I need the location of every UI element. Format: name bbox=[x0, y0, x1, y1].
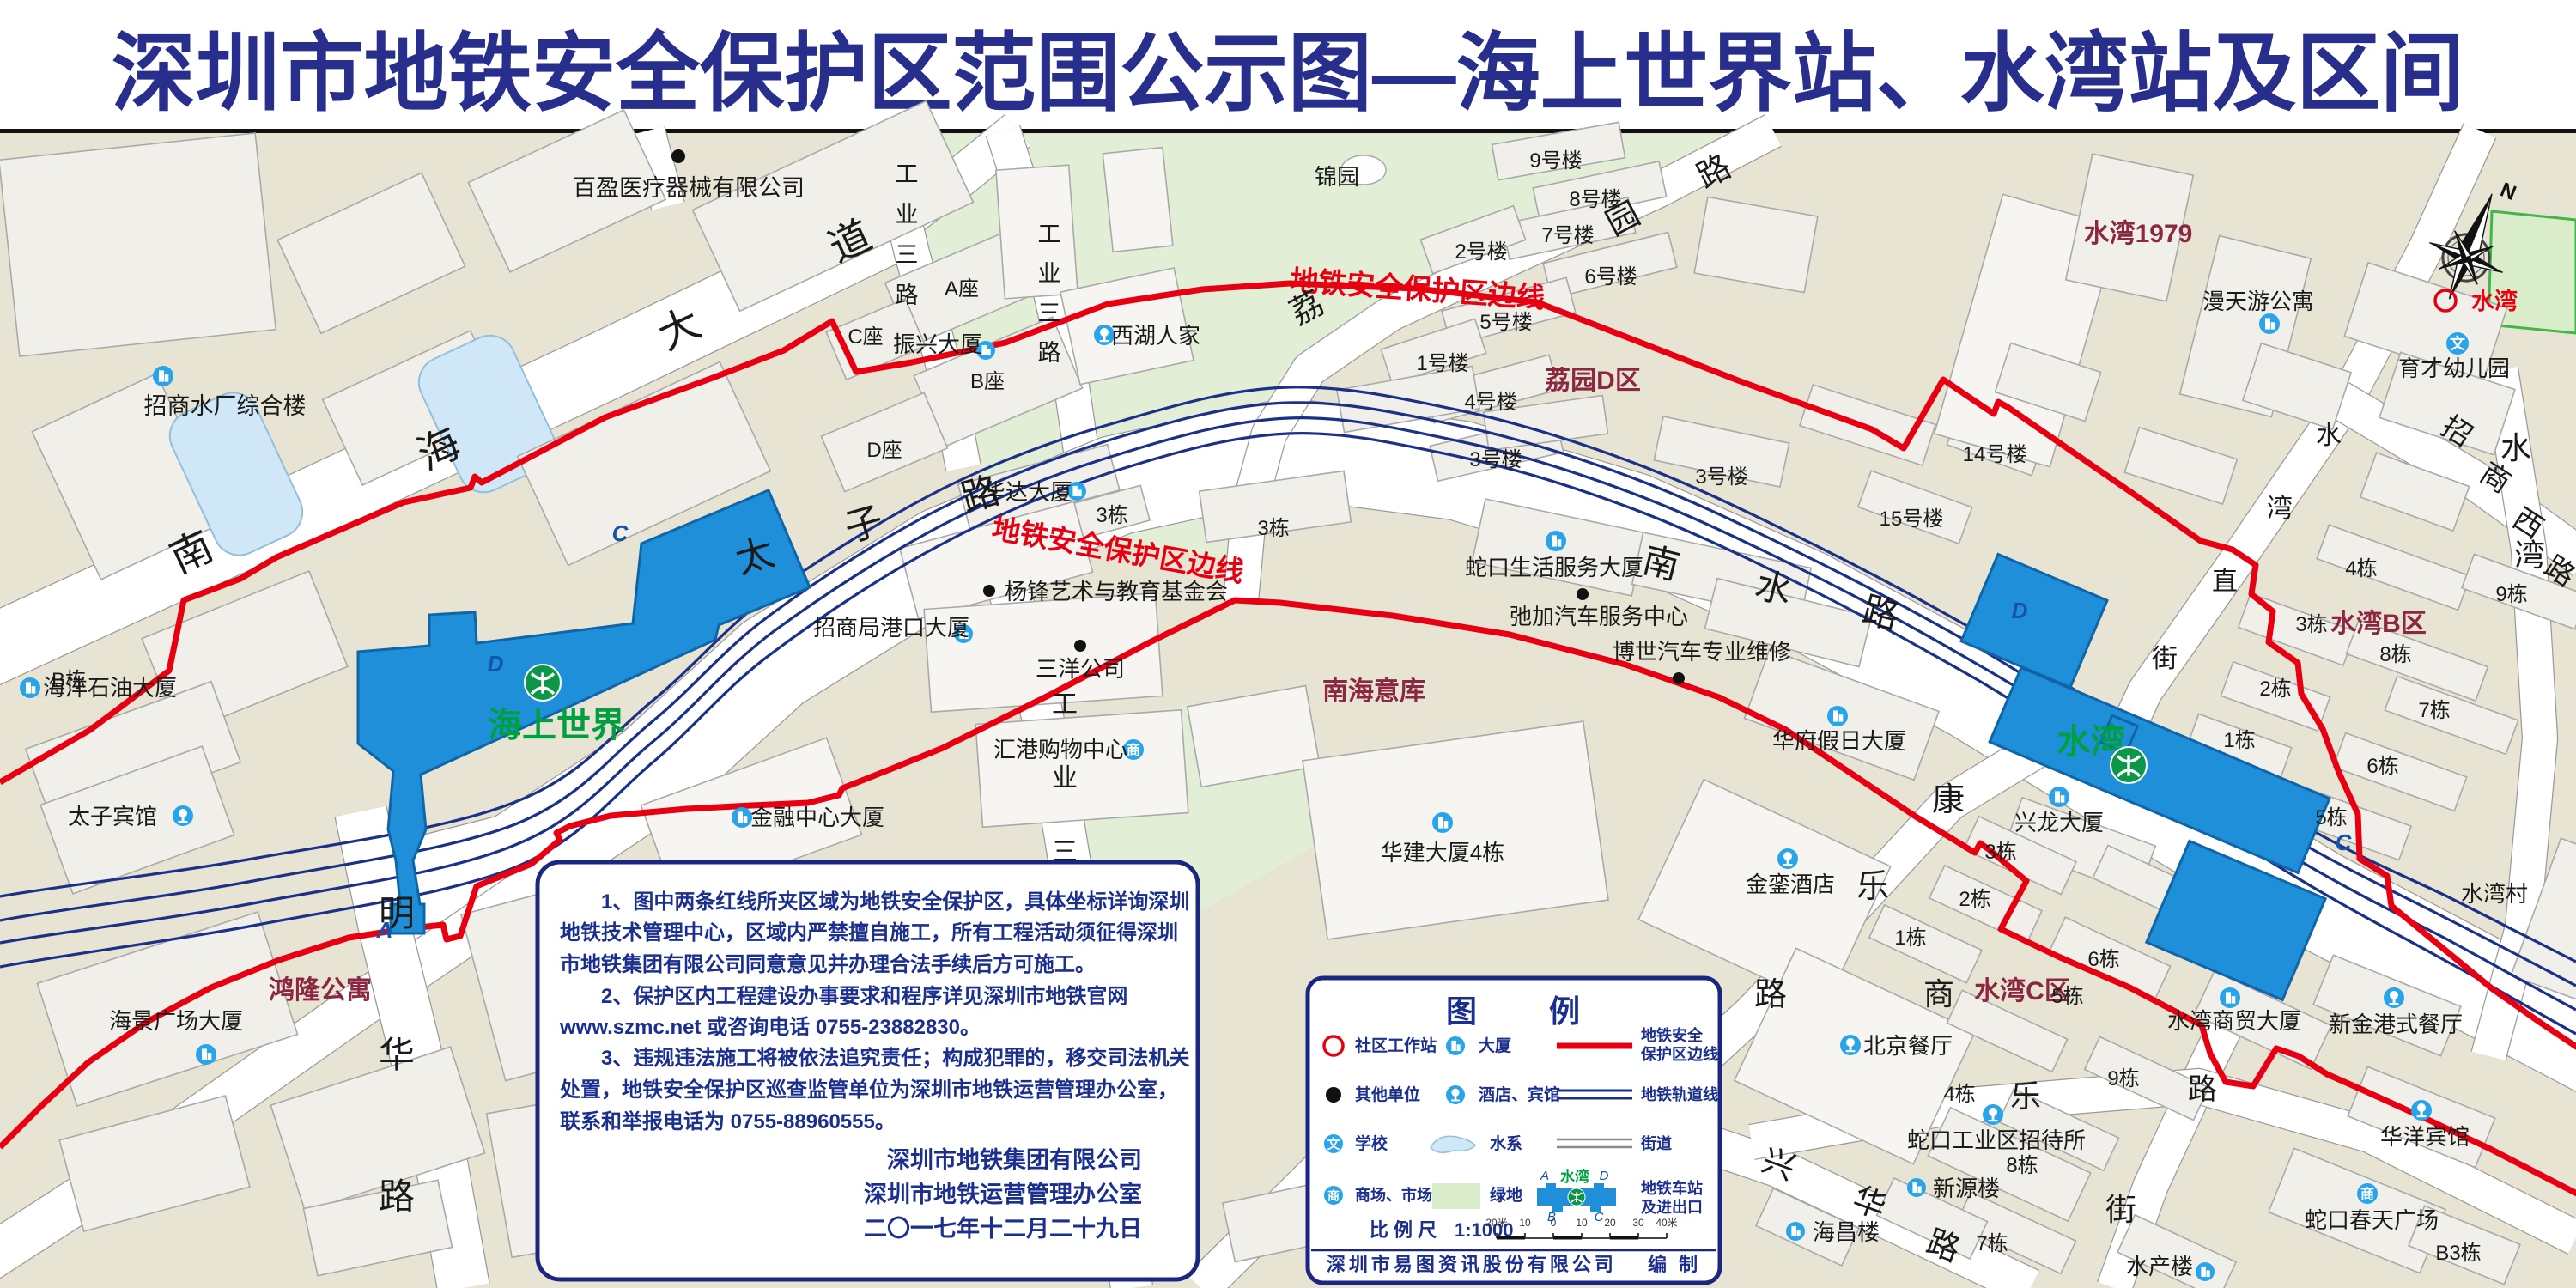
svg-text:及进出口: 及进出口 bbox=[1641, 1198, 1703, 1216]
svg-text:10: 10 bbox=[1519, 1217, 1531, 1229]
svg-text:3栋: 3栋 bbox=[2295, 613, 2327, 636]
svg-text:百盈医疗器械有限公司: 百盈医疗器械有限公司 bbox=[573, 175, 805, 201]
svg-text:海景广场大厦: 海景广场大厦 bbox=[109, 1008, 243, 1034]
svg-text:街: 街 bbox=[2152, 645, 2178, 673]
svg-text:A: A bbox=[1540, 1169, 1549, 1183]
svg-text:水湾1979: 水湾1979 bbox=[2084, 219, 2193, 248]
svg-text:D: D bbox=[1600, 1169, 1609, 1183]
svg-text:商: 商 bbox=[2360, 1186, 2374, 1202]
svg-text:其他单位: 其他单位 bbox=[1355, 1084, 1420, 1104]
svg-text:7栋: 7栋 bbox=[2418, 699, 2450, 722]
svg-text:8栋: 8栋 bbox=[2379, 643, 2411, 666]
svg-text:比 例 尺: 比 例 尺 bbox=[1370, 1219, 1437, 1241]
svg-text:业: 业 bbox=[1038, 261, 1061, 287]
svg-text:水湾商贸大厦: 水湾商贸大厦 bbox=[2167, 1008, 2301, 1034]
svg-text:1栋: 1栋 bbox=[1894, 927, 1926, 950]
svg-text:新源楼: 新源楼 bbox=[1933, 1176, 2000, 1201]
svg-text:华洋宾馆: 华洋宾馆 bbox=[2380, 1124, 2470, 1150]
svg-text:7号楼: 7号楼 bbox=[1541, 224, 1594, 247]
svg-text:1栋: 1栋 bbox=[2223, 729, 2255, 752]
svg-text:2、保护区内工程建设办事要求和程序详见深圳市地铁官网: 2、保护区内工程建设办事要求和程序详见深圳市地铁官网 bbox=[560, 984, 1127, 1008]
svg-text:路: 路 bbox=[896, 283, 919, 308]
svg-text:A座: A座 bbox=[945, 277, 979, 301]
svg-text:乐: 乐 bbox=[1856, 869, 1889, 905]
svg-text:3、违规违法施工将被依法追究责任；构成犯罪的，移交司法机关: 3、违规违法施工将被依法追究责任；构成犯罪的，移交司法机关 bbox=[560, 1046, 1189, 1070]
svg-text:3栋: 3栋 bbox=[1984, 841, 2016, 864]
svg-text:文: 文 bbox=[2450, 335, 2466, 353]
svg-text:2栋: 2栋 bbox=[1959, 888, 1990, 911]
svg-text:酒店、宾馆: 酒店、宾馆 bbox=[1479, 1084, 1560, 1104]
svg-text:康: 康 bbox=[1932, 782, 1965, 818]
svg-text:9栋: 9栋 bbox=[2107, 1067, 2139, 1091]
svg-text:D: D bbox=[2012, 598, 2028, 623]
svg-text:社区工作站: 社区工作站 bbox=[1354, 1036, 1437, 1055]
svg-text:保护区边线: 保护区边线 bbox=[1640, 1045, 1718, 1063]
svg-text:乐: 乐 bbox=[2010, 1078, 2041, 1114]
svg-text:3号楼: 3号楼 bbox=[1695, 465, 1747, 489]
svg-text:商: 商 bbox=[1127, 742, 1140, 758]
svg-text:兴龙大厦: 兴龙大厦 bbox=[2014, 810, 2104, 835]
svg-text:D座: D座 bbox=[866, 439, 902, 462]
svg-text:4栋: 4栋 bbox=[2345, 557, 2377, 580]
svg-text:鸿隆公寓: 鸿隆公寓 bbox=[269, 975, 372, 1005]
svg-text:例: 例 bbox=[1549, 993, 1580, 1029]
svg-text:深圳市地铁运营管理办公室: 深圳市地铁运营管理办公室 bbox=[864, 1181, 1142, 1207]
svg-text:金融中心大厦: 金融中心大厦 bbox=[750, 805, 884, 830]
svg-text:业: 业 bbox=[896, 202, 919, 228]
svg-text:20: 20 bbox=[1604, 1217, 1616, 1229]
svg-text:招商水厂综合楼: 招商水厂综合楼 bbox=[144, 393, 307, 419]
svg-text:育才幼儿园: 育才幼儿园 bbox=[2398, 355, 2510, 381]
svg-text:华达大厦: 华达大厦 bbox=[983, 479, 1072, 505]
svg-text:2号楼: 2号楼 bbox=[1455, 240, 1507, 264]
svg-text:水系: 水系 bbox=[1490, 1134, 1522, 1153]
svg-text:14号楼: 14号楼 bbox=[1963, 443, 2027, 466]
svg-text:街道: 街道 bbox=[1640, 1134, 1672, 1152]
svg-text:南海意库: 南海意库 bbox=[1322, 677, 1425, 706]
svg-text:6栋: 6栋 bbox=[2366, 755, 2398, 778]
svg-text:文: 文 bbox=[1327, 1137, 1340, 1152]
svg-text:5栋: 5栋 bbox=[2051, 985, 2083, 1008]
svg-text:弛加汽车服务中心: 弛加汽车服务中心 bbox=[1510, 604, 1688, 629]
svg-text:20米: 20米 bbox=[1485, 1217, 1507, 1229]
svg-text:华府假日大厦: 华府假日大厦 bbox=[1772, 728, 1906, 754]
svg-text:2栋: 2栋 bbox=[2259, 677, 2291, 701]
svg-text:水湾: 水湾 bbox=[2471, 288, 2518, 314]
svg-text:8栋: 8栋 bbox=[2006, 1154, 2038, 1177]
svg-text:太子宾馆: 太子宾馆 bbox=[68, 804, 157, 829]
svg-text:业: 业 bbox=[1052, 764, 1078, 793]
svg-text:蛇口生活服务大厦: 蛇口生活服务大厦 bbox=[1465, 555, 1643, 580]
svg-text:5号楼: 5号楼 bbox=[1479, 311, 1532, 334]
svg-text:3栋: 3栋 bbox=[1257, 517, 1289, 540]
svg-text:6号楼: 6号楼 bbox=[1584, 265, 1637, 289]
svg-text:B3栋: B3栋 bbox=[2435, 1242, 2481, 1265]
svg-text:招商局港口大厦: 招商局港口大厦 bbox=[813, 615, 969, 641]
svg-text:直: 直 bbox=[2212, 568, 2238, 596]
svg-text:三洋公司: 三洋公司 bbox=[1036, 656, 1125, 682]
svg-text:新金港式餐厅: 新金港式餐厅 bbox=[2329, 1012, 2463, 1037]
svg-text:C: C bbox=[2336, 829, 2353, 855]
svg-text:0: 0 bbox=[1551, 1217, 1557, 1229]
svg-text:深圳市地铁集团有限公司: 深圳市地铁集团有限公司 bbox=[887, 1146, 1142, 1173]
svg-text:C: C bbox=[612, 520, 629, 546]
svg-text:路: 路 bbox=[1754, 977, 1787, 1013]
svg-text:水产楼: 水产楼 bbox=[2126, 1254, 2193, 1279]
svg-text:海上世界: 海上世界 bbox=[488, 707, 625, 744]
svg-text:8号楼: 8号楼 bbox=[1569, 188, 1621, 211]
svg-text:水: 水 bbox=[2316, 422, 2342, 450]
svg-text:1、图中两条红线所夹区域为地铁安全保护区，具体坐标详询深圳: 1、图中两条红线所夹区域为地铁安全保护区，具体坐标详询深圳 bbox=[560, 890, 1189, 914]
svg-text:处置，地铁安全保护区巡查监管单位为深圳市地铁运营管理办公室，: 处置，地铁安全保护区巡查监管单位为深圳市地铁运营管理办公室， bbox=[559, 1078, 1178, 1102]
svg-text:博世汽车专业维修: 博世汽车专业维修 bbox=[1613, 639, 1791, 665]
svg-text:6栋: 6栋 bbox=[2087, 948, 2119, 971]
svg-text:4号楼: 4号楼 bbox=[1464, 391, 1516, 414]
svg-text:西湖人家: 西湖人家 bbox=[1111, 323, 1200, 349]
svg-text:三: 三 bbox=[896, 242, 919, 268]
svg-text:工: 工 bbox=[1052, 690, 1078, 719]
svg-text:振兴大厦: 振兴大厦 bbox=[893, 331, 982, 357]
svg-text:路: 路 bbox=[1038, 340, 1061, 366]
svg-text:荔园D区: 荔园D区 bbox=[1545, 367, 1641, 395]
svg-text:地铁车站: 地铁车站 bbox=[1641, 1179, 1703, 1197]
svg-text:深圳市地铁安全保护区范围公示图—海上世界站、水湾站及区间: 深圳市地铁安全保护区范围公示图—海上世界站、水湾站及区间 bbox=[112, 26, 2464, 122]
svg-text:地铁安全: 地铁安全 bbox=[1641, 1026, 1704, 1044]
svg-text:杨锋艺术与教育基金会: 杨锋艺术与教育基金会 bbox=[1005, 579, 1228, 605]
svg-text:40米: 40米 bbox=[1656, 1217, 1677, 1229]
svg-text:水湾B区: 水湾B区 bbox=[2330, 609, 2427, 638]
svg-text:湾: 湾 bbox=[2514, 538, 2545, 573]
svg-text:工: 工 bbox=[896, 161, 919, 187]
svg-text:绿地: 绿地 bbox=[1490, 1185, 1522, 1205]
svg-text:水: 水 bbox=[2500, 430, 2531, 465]
svg-text:湾: 湾 bbox=[2267, 495, 2293, 523]
svg-text:3号楼: 3号楼 bbox=[1469, 448, 1522, 471]
svg-text:二〇一七年十二月二十九日: 二〇一七年十二月二十九日 bbox=[864, 1215, 1142, 1242]
svg-text:地铁轨道线: 地铁轨道线 bbox=[1641, 1085, 1718, 1103]
svg-text:4栋: 4栋 bbox=[1943, 1083, 1975, 1106]
svg-text:3栋: 3栋 bbox=[1096, 504, 1127, 527]
svg-text:北京餐厅: 北京餐厅 bbox=[1863, 1033, 1953, 1059]
svg-text:30: 30 bbox=[1632, 1217, 1644, 1229]
svg-text:D: D bbox=[488, 651, 504, 677]
svg-text:华: 华 bbox=[379, 1035, 415, 1075]
svg-text:漫天游公寓: 漫天游公寓 bbox=[2202, 289, 2314, 314]
svg-text:华建大厦4栋: 华建大厦4栋 bbox=[1381, 840, 1504, 866]
svg-text:5栋: 5栋 bbox=[2315, 806, 2347, 829]
svg-text:蛇口春天广场: 蛇口春天广场 bbox=[2305, 1207, 2439, 1233]
svg-text:明: 明 bbox=[379, 893, 415, 933]
svg-text:15号楼: 15号楼 bbox=[1880, 507, 1944, 531]
svg-text:市地铁集团有限公司同意意见并办理合法手续后方可施工。: 市地铁集团有限公司同意意见并办理合法手续后方可施工。 bbox=[560, 952, 1096, 976]
svg-text:9栋: 9栋 bbox=[2495, 583, 2527, 606]
svg-text:图: 图 bbox=[1446, 993, 1477, 1029]
svg-text:海昌楼: 海昌楼 bbox=[1813, 1219, 1880, 1245]
svg-text:工: 工 bbox=[1038, 222, 1061, 247]
svg-text:三: 三 bbox=[1038, 301, 1061, 326]
svg-text:地铁技术管理中心，区域内严禁擅自施工，所有工程活动须征得深圳: 地铁技术管理中心，区域内严禁擅自施工，所有工程活动须征得深圳 bbox=[560, 920, 1178, 945]
svg-text:商场、市场: 商场、市场 bbox=[1355, 1186, 1432, 1204]
svg-text:B座: B座 bbox=[970, 370, 1005, 393]
svg-text:商: 商 bbox=[1327, 1189, 1340, 1203]
svg-text:10: 10 bbox=[1576, 1217, 1588, 1229]
svg-text:C座: C座 bbox=[848, 325, 883, 349]
svg-text:汇港购物中心: 汇港购物中心 bbox=[993, 737, 1127, 762]
svg-text:水湾: 水湾 bbox=[1560, 1168, 1589, 1185]
svg-text:蛇口工业区招待所: 蛇口工业区招待所 bbox=[1907, 1127, 2086, 1153]
svg-text:路: 路 bbox=[2188, 1073, 2217, 1106]
svg-text:www.szmc.net 或咨询电话 0755-238828: www.szmc.net 或咨询电话 0755-23882830。 bbox=[559, 1016, 981, 1039]
svg-text:海洋石油大厦: 海洋石油大厦 bbox=[43, 675, 177, 701]
svg-text:锦园: 锦园 bbox=[1315, 164, 1359, 190]
svg-text:9号楼: 9号楼 bbox=[1529, 149, 1582, 173]
svg-text:深圳市易图资讯股份有限公司 编 制: 深圳市易图资讯股份有限公司 编 制 bbox=[1327, 1254, 1701, 1275]
svg-text:金銮酒店: 金銮酒店 bbox=[1746, 872, 1835, 897]
svg-text:街: 街 bbox=[2105, 1192, 2136, 1227]
svg-text:7栋: 7栋 bbox=[1976, 1232, 2008, 1255]
svg-text:学校: 学校 bbox=[1355, 1133, 1388, 1153]
svg-text:商: 商 bbox=[1923, 976, 1954, 1012]
svg-text:C: C bbox=[1595, 1210, 1604, 1224]
svg-text:1号楼: 1号楼 bbox=[1416, 352, 1468, 375]
svg-text:联系和举报电话为 0755-88960555。: 联系和举报电话为 0755-88960555。 bbox=[560, 1109, 896, 1133]
svg-text:路: 路 bbox=[379, 1176, 415, 1217]
svg-text:大厦: 大厦 bbox=[1479, 1036, 1512, 1055]
svg-text:水湾村: 水湾村 bbox=[2461, 881, 2528, 907]
